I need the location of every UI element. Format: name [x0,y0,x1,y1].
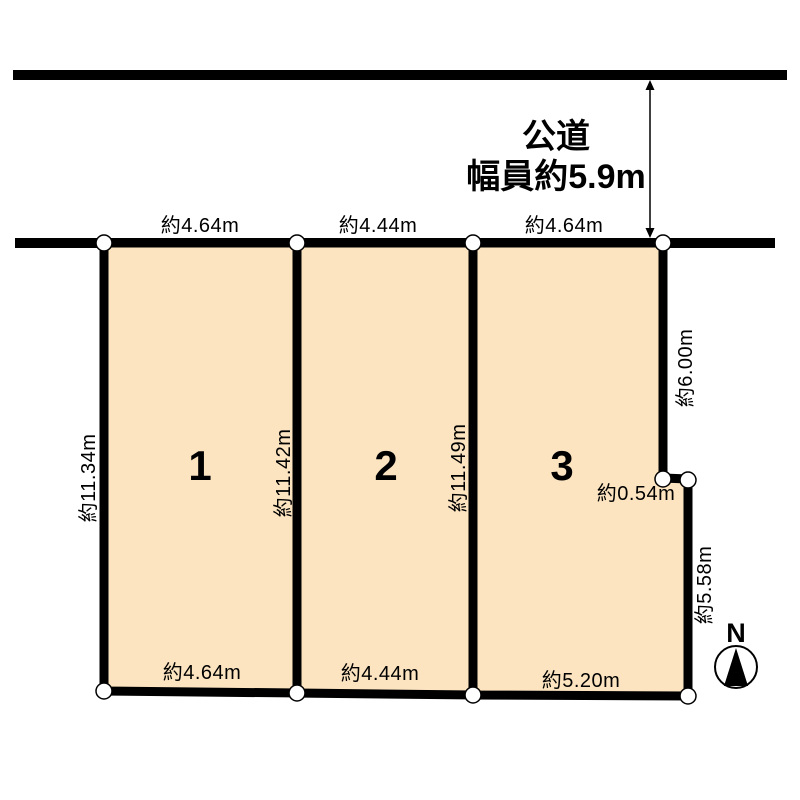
plot-1-right-dimension: 約11.42m [272,429,295,518]
road-width-label: 幅員約5.9m [466,158,646,196]
plot-3-right-lower-dimension: 約5.58m [693,546,716,625]
plot-2-top-dimension: 約4.44m [339,214,418,237]
road-name-label: 公道 [522,118,590,156]
plot-2-right-dimension: 約11.49m [447,424,470,513]
corner-marker [96,683,112,699]
plot-3-number: 3 [550,442,573,489]
road-edge-top-line [13,70,787,80]
compass-north-label: N [726,618,746,648]
corner-marker [680,688,696,704]
plot-3-shape [473,243,688,696]
corner-marker [655,235,671,251]
arrowhead-down-icon [646,228,655,238]
plot-1-left-dimension: 約11.34m [77,434,100,523]
lot-layout-page: 公道 幅員約5.9m 約4.64m 約4.44m 約4.64m 約11.34m … [0,0,800,800]
corner-marker [465,687,481,703]
plot-1-top-dimension: 約4.64m [161,214,240,237]
corner-marker [680,472,696,488]
arrowhead-up-icon [646,80,655,90]
plot-1-number: 1 [188,442,211,489]
plot-1-bottom-dimension: 約4.64m [163,661,242,684]
compass: N [715,618,757,688]
plot-3-right-upper-dimension: 約6.00m [674,329,697,408]
lot-layout-diagram: 公道 幅員約5.9m 約4.64m 約4.44m 約4.64m 約11.34m … [0,0,800,800]
plot-2-number: 2 [374,442,397,489]
corner-marker [96,235,112,251]
plot-3-bottom-dimension: 約5.20m [542,669,621,692]
plot-2-bottom-dimension: 約4.44m [341,662,420,685]
corner-marker [289,685,305,701]
road-width-arrow [646,80,655,238]
plot-3-top-dimension: 約4.64m [525,214,604,237]
corner-marker [289,235,305,251]
plot-3-notch-dimension: 約0.54m [597,482,676,505]
corner-marker [465,235,481,251]
